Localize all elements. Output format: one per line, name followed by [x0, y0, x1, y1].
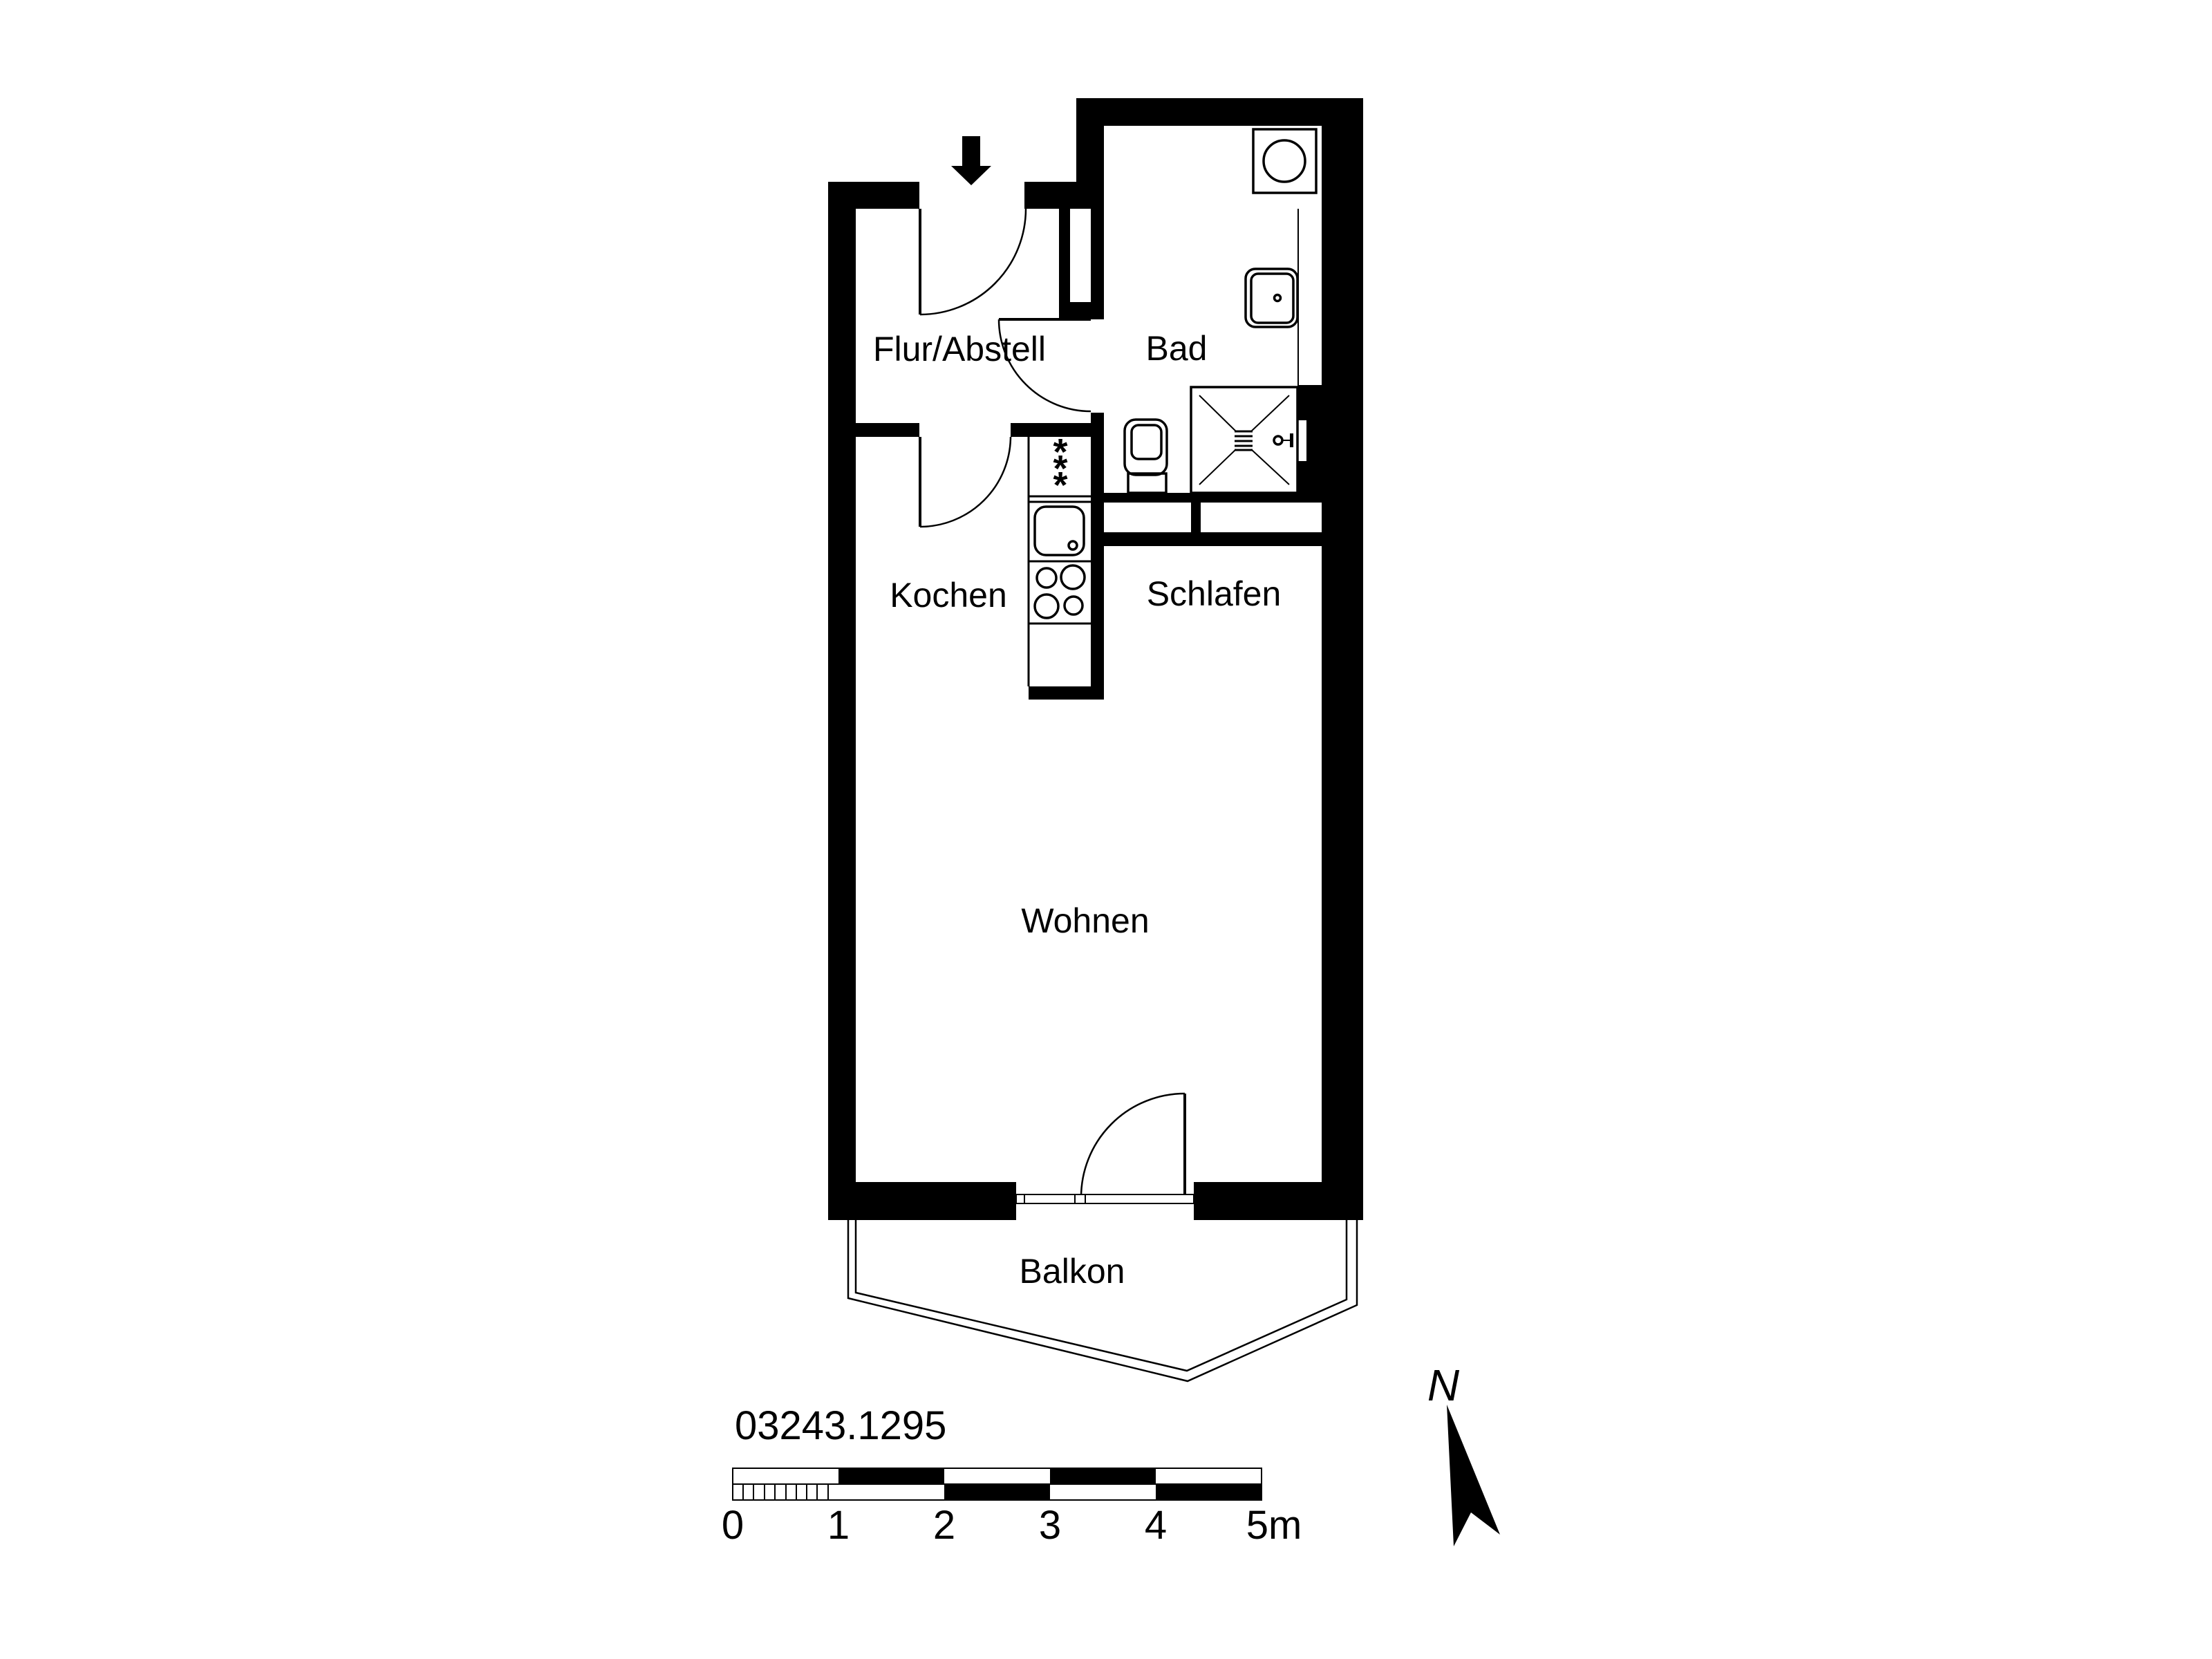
wall-kitchen-right: [1091, 413, 1104, 700]
fridge-icon: * * *: [1053, 431, 1067, 506]
shower-valve-handle: [1290, 433, 1293, 447]
floor-plan-page: * * * Flur/Abstell Bad Kochen Schlafen W…: [0, 0, 2212, 1659]
wall-bad-top: [1076, 98, 1363, 126]
paper-background: [0, 0, 2212, 1659]
room-label-kochen: Kochen: [890, 576, 1007, 615]
wall-entrance-left: [828, 182, 919, 209]
entrance-arrow-stem: [962, 136, 980, 167]
scale-seg-top-2: [1050, 1468, 1156, 1484]
scale-label-3: 3: [1039, 1503, 1061, 1548]
wall-niche-bottom: [1059, 302, 1104, 319]
scale-seg-bottom-1: [944, 1484, 1050, 1500]
floor-plan-svg: * * * Flur/Abstell Bad Kochen Schlafen W…: [0, 0, 2212, 1659]
window-band: [1016, 1194, 1194, 1203]
wall-bottom-right: [1194, 1182, 1363, 1220]
wall-shaft-niche: [1297, 420, 1306, 461]
room-label-bad: Bad: [1146, 329, 1208, 368]
scale-label-4: 4: [1145, 1503, 1167, 1548]
wall-bottom-left: [828, 1182, 1016, 1220]
balcony-window: [1016, 1194, 1194, 1203]
room-label-balkon: Balkon: [1020, 1252, 1125, 1291]
scale-label-2: 2: [933, 1503, 955, 1548]
wall-right-exterior: [1322, 98, 1363, 1220]
scale-seg-top-1: [838, 1468, 944, 1484]
north-label: N: [1427, 1360, 1460, 1410]
scale-label-5m: 5m: [1246, 1503, 1302, 1548]
scale-label-1: 1: [827, 1503, 850, 1548]
room-label-wohnen: Wohnen: [1021, 901, 1149, 940]
wall-flur-kochen-left: [856, 423, 919, 437]
wall-schlafen-top: [1104, 532, 1322, 546]
room-label-schlafen: Schlafen: [1147, 574, 1282, 613]
scale-seg-bottom-2: [1156, 1484, 1262, 1500]
room-label-flur: Flur/Abstell: [873, 330, 1046, 368]
wall-left-exterior: [828, 182, 856, 1220]
wall-entrance-right: [1024, 182, 1080, 209]
wall-niche-left-strip: [1059, 205, 1070, 310]
wall-kitchen-bottom: [1029, 686, 1104, 700]
scale-label-0: 0: [722, 1503, 744, 1548]
plan-number: 03243.1295: [735, 1403, 946, 1448]
wall-flur-kochen-right: [1011, 423, 1091, 437]
freezer-star-3: *: [1053, 465, 1067, 506]
